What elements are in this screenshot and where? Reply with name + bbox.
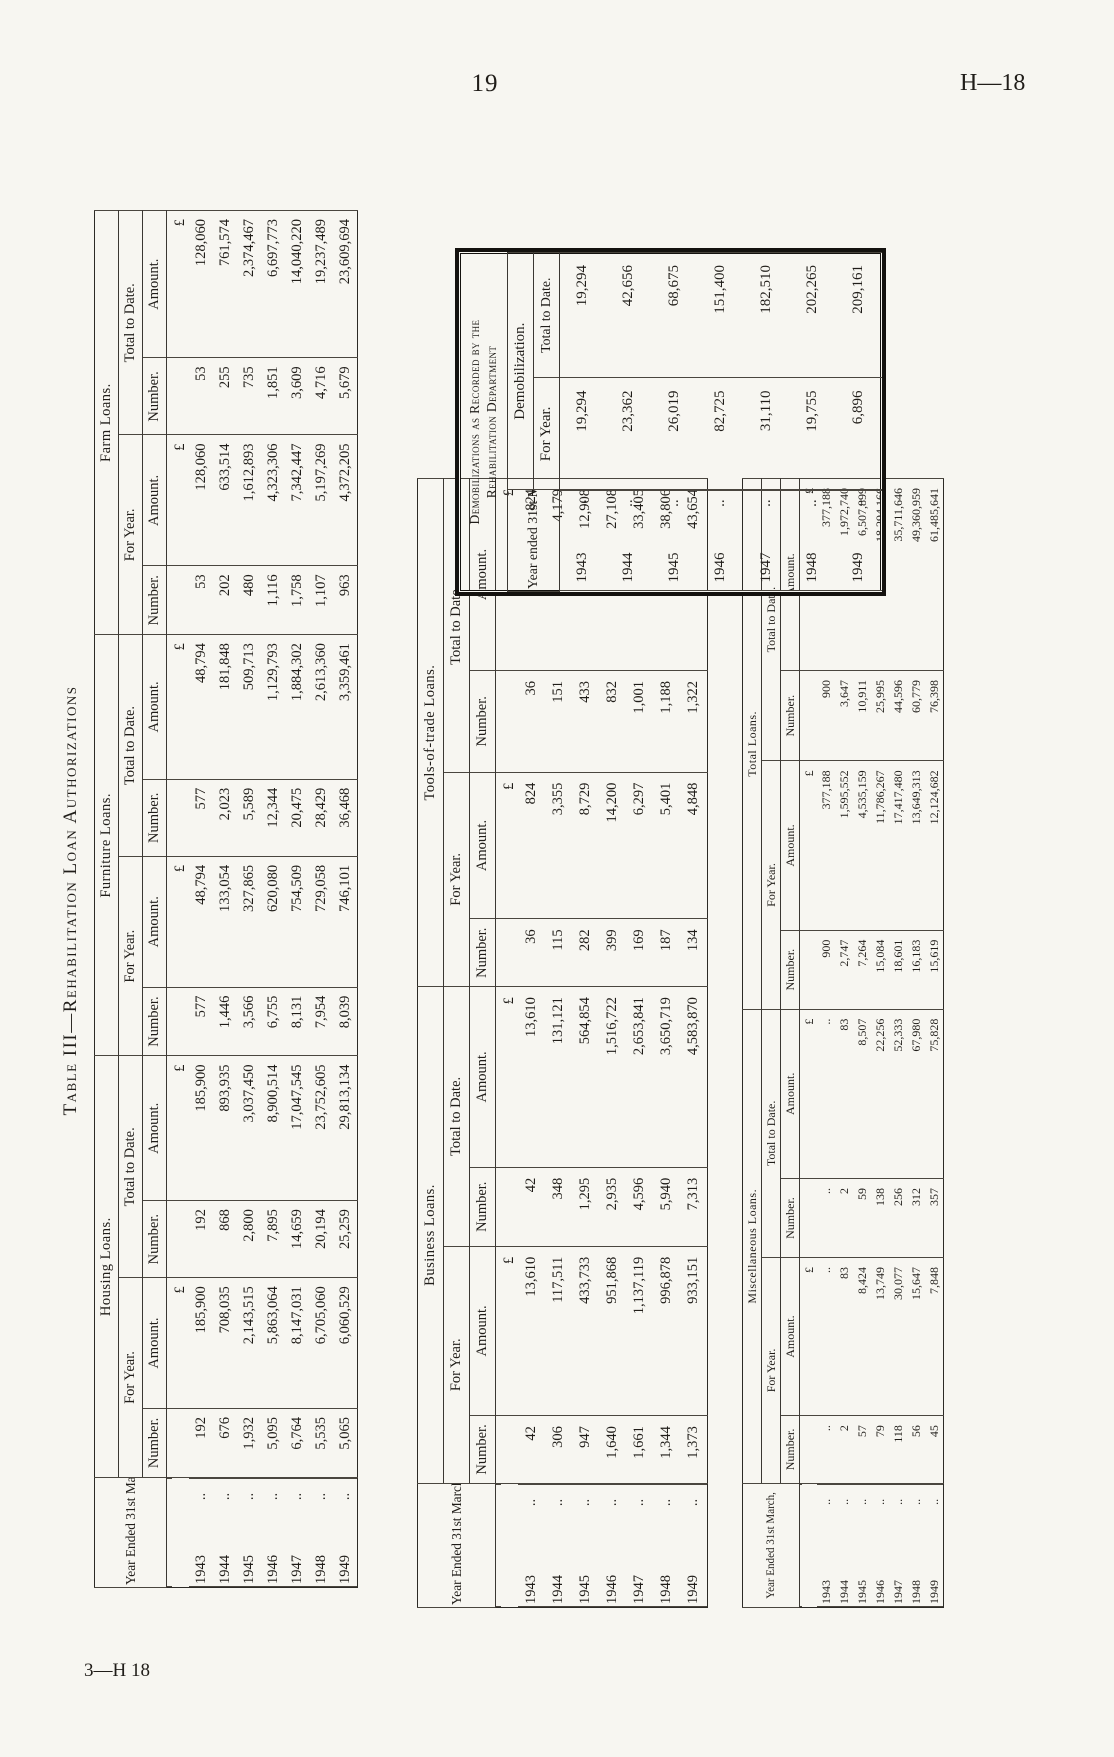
value-cell xyxy=(167,779,190,856)
rotated-table-sheet: Table III—Rehabilitation Loan Authorizat… xyxy=(60,48,1070,1708)
subheader-for-year: For Year. xyxy=(119,856,143,1056)
value-cell: 7,342,447 xyxy=(285,435,309,566)
value-cell: 1,344 xyxy=(653,1416,680,1484)
value-cell: 19,294 xyxy=(559,253,606,378)
value-cell: 1,001 xyxy=(626,670,653,772)
value-cell: 20,194 xyxy=(309,1201,333,1278)
value-cell: 117,511 xyxy=(545,1246,572,1415)
value-cell: 118 xyxy=(889,1416,907,1484)
year-cell: 1945.. xyxy=(237,1478,261,1587)
leader-dots: .. xyxy=(819,1499,834,1505)
value-cell: 433,733 xyxy=(572,1246,599,1415)
year-label: 1943 xyxy=(193,1555,209,1584)
value-cell: 14,200 xyxy=(599,772,626,919)
value-cell: 19,237,489 xyxy=(309,211,333,358)
value-cell: 128,060 xyxy=(189,211,213,358)
leader-dots: .. xyxy=(850,499,867,507)
value-cell: 2,935 xyxy=(599,1167,626,1246)
value-cell: 868 xyxy=(213,1201,237,1278)
value-cell: .. xyxy=(817,1258,835,1416)
value-cell: 36,468 xyxy=(333,779,358,856)
value-cell: 31,110 xyxy=(744,378,790,490)
value-cell: 25,259 xyxy=(333,1201,358,1278)
col-number: Number. xyxy=(470,1416,496,1484)
year-label: 1947 xyxy=(891,1580,905,1604)
value-cell: 36 xyxy=(518,670,545,772)
value-cell: 26,019 xyxy=(652,378,698,490)
leader-dots: .. xyxy=(873,1499,888,1505)
col-amount: Amount. xyxy=(143,635,167,780)
value-cell: 480 xyxy=(237,566,261,635)
year-label: 1944 xyxy=(620,553,636,583)
year-label: 1948 xyxy=(804,553,820,583)
value-cell: 3,355 xyxy=(545,772,572,919)
subheader-for-year: For Year. xyxy=(444,1246,470,1483)
value-cell: 14,040,220 xyxy=(285,211,309,358)
value-cell: 2 xyxy=(835,1179,853,1258)
value-cell: 1,595,552 xyxy=(835,761,853,930)
value-cell: 1,851 xyxy=(261,358,285,435)
year-label: 1949 xyxy=(850,553,866,583)
value-cell: 49,360,959 xyxy=(907,479,925,671)
leader-dots: .. xyxy=(574,499,591,507)
value-cell: 67,980 xyxy=(907,1009,925,1178)
value-cell: 131,121 xyxy=(545,987,572,1168)
year-cell: 1943.. xyxy=(560,490,606,591)
value-cell: 7,954 xyxy=(309,987,333,1056)
year-label: 1945 xyxy=(666,553,682,583)
value-cell: 6,705,060 xyxy=(309,1278,333,1409)
year-label: 1943 xyxy=(574,553,590,583)
leader-dots: .. xyxy=(927,1499,942,1505)
value-cell: 933,151 xyxy=(680,1246,708,1415)
year-label: 1945 xyxy=(241,1555,257,1584)
value-cell: 3,647 xyxy=(835,671,853,761)
year-cell: 1948.. xyxy=(309,1478,333,1587)
subheader-total-to-date: Total to Date. xyxy=(444,987,470,1247)
subheader-for-year: For Year. xyxy=(762,761,781,1009)
year-label: 1947 xyxy=(631,1575,647,1604)
value-cell: 7,313 xyxy=(680,1167,708,1246)
value-cell xyxy=(800,1416,818,1484)
value-cell: 68,675 xyxy=(652,253,698,378)
value-cell: 6,060,529 xyxy=(333,1278,358,1409)
value-cell: 14,659 xyxy=(285,1201,309,1278)
col-number: Number. xyxy=(143,987,167,1056)
value-cell: 151,400 xyxy=(698,253,744,378)
value-cell: 61,485,641 xyxy=(925,479,944,671)
value-cell xyxy=(167,358,190,435)
col-number: Number. xyxy=(143,1409,167,1478)
value-cell: 4,848 xyxy=(680,772,708,919)
col-number: Number. xyxy=(143,1201,167,1278)
value-cell: 185,900 xyxy=(189,1056,213,1201)
value-cell: 7,848 xyxy=(925,1258,944,1416)
value-cell: 1,322 xyxy=(680,670,708,772)
col-amount: Amount. xyxy=(143,1278,167,1409)
value-cell: 7,895 xyxy=(261,1201,285,1278)
subheader-for-year: For Year. xyxy=(119,1278,143,1478)
value-cell: 6,896 xyxy=(836,378,882,490)
value-cell: 951,868 xyxy=(599,1246,626,1415)
subheader-for-year: For Year. xyxy=(533,378,559,490)
demobilizations-table: Year ended 31st March, Demobilization. F… xyxy=(508,252,882,592)
year-cell: 1945.. xyxy=(652,490,698,591)
value-cell xyxy=(167,1409,190,1478)
col-amount: Amount. xyxy=(143,435,167,566)
value-cell: 60,779 xyxy=(907,671,925,761)
value-cell: 1,373 xyxy=(680,1416,708,1484)
value-cell: 134 xyxy=(680,919,708,987)
year-cell: 1946.. xyxy=(599,1484,626,1607)
year-cell: 1948.. xyxy=(790,490,836,591)
value-cell: 187 xyxy=(653,919,680,987)
value-cell: 48,794 xyxy=(189,856,213,987)
value-cell: 75,828 xyxy=(925,1009,944,1178)
col-amount: Amount. xyxy=(781,1258,800,1416)
year-cell: 1949.. xyxy=(680,1484,707,1607)
value-cell: 433 xyxy=(572,670,599,772)
value-cell: 42 xyxy=(518,1416,545,1484)
value-cell: 115 xyxy=(545,919,572,987)
value-cell: 5,535 xyxy=(309,1409,333,1478)
value-cell: 28,429 xyxy=(309,779,333,856)
value-cell: 996,878 xyxy=(653,1246,680,1415)
value-cell: £ xyxy=(167,435,190,566)
value-cell: 1,446 xyxy=(213,987,237,1056)
value-cell: 6,764 xyxy=(285,1409,309,1478)
year-label: 1949 xyxy=(337,1555,353,1584)
value-cell: 1,295 xyxy=(572,1167,599,1246)
value-cell: 900 xyxy=(817,671,835,761)
col-amount: Amount. xyxy=(143,211,167,358)
value-cell: 963 xyxy=(333,566,358,635)
col-amount: Amount. xyxy=(143,856,167,987)
value-cell: 3,650,719 xyxy=(653,987,680,1168)
col-amount: Amount. xyxy=(781,1009,800,1178)
value-cell: 15,084 xyxy=(871,930,889,1009)
year-label: 1944 xyxy=(550,1575,566,1604)
value-cell: 209,161 xyxy=(836,253,882,378)
year-label: 1944 xyxy=(837,1580,851,1604)
year-cell: 1946.. xyxy=(871,1484,889,1607)
value-cell: 5,679 xyxy=(333,358,358,435)
value-cell: 3,609 xyxy=(285,358,309,435)
value-cell: 53 xyxy=(189,358,213,435)
value-cell: 57 xyxy=(853,1416,871,1484)
year-column-header: Year Ended 31st March, xyxy=(95,1477,167,1587)
value-cell: 128,060 xyxy=(189,435,213,566)
value-cell: 348 xyxy=(545,1167,572,1246)
value-cell: 8,147,031 xyxy=(285,1278,309,1409)
value-cell: 48,794 xyxy=(189,635,213,780)
col-number: Number. xyxy=(781,671,800,761)
value-cell: 10,911 xyxy=(853,671,871,761)
value-cell: .. xyxy=(817,1009,835,1178)
value-cell: 18,601 xyxy=(889,930,907,1009)
value-cell: 564,854 xyxy=(572,987,599,1168)
year-cell: 1947.. xyxy=(626,1484,653,1607)
value-cell: 4,596 xyxy=(626,1167,653,1246)
value-cell: 7,264 xyxy=(853,930,871,1009)
value-cell: 2,023 xyxy=(213,779,237,856)
value-cell: 8,131 xyxy=(285,987,309,1056)
value-cell: 17,047,545 xyxy=(285,1056,309,1201)
col-number: Number. xyxy=(470,670,496,772)
year-cell: 1949.. xyxy=(836,490,882,591)
value-cell xyxy=(496,1167,519,1246)
year-cell xyxy=(496,1484,501,1607)
value-cell: £ xyxy=(167,1278,190,1409)
leader-dots: .. xyxy=(193,1493,210,1500)
value-cell: 1,137,119 xyxy=(626,1246,653,1415)
year-label: 1945 xyxy=(577,1575,593,1604)
section-header-tools: Tools-of-trade Loans. xyxy=(418,479,444,987)
year-cell: 1947.. xyxy=(744,490,790,591)
value-cell: 509,713 xyxy=(237,635,261,780)
value-cell: 2,800 xyxy=(237,1201,261,1278)
year-cell: 1943.. xyxy=(817,1484,835,1607)
col-number: Number. xyxy=(143,566,167,635)
value-cell: 4,535,159 xyxy=(853,761,871,930)
value-cell: 947 xyxy=(572,1416,599,1484)
year-cell: 1947.. xyxy=(889,1484,907,1607)
value-cell: 633,514 xyxy=(213,435,237,566)
year-label: 1947 xyxy=(758,553,774,583)
value-cell: 1,188 xyxy=(653,670,680,772)
demobilizations-title-line1: Demobilizations as Recorded by the xyxy=(467,256,484,588)
demobilizations-title: Demobilizations as Recorded by the Rehab… xyxy=(459,252,508,592)
leader-dots: .. xyxy=(712,499,729,507)
year-label: 1946 xyxy=(604,1575,620,1604)
leader-dots: .. xyxy=(804,499,821,507)
value-cell: 8,729 xyxy=(572,772,599,919)
year-label: 1946 xyxy=(873,1580,887,1604)
subheader-total-to-date: Total to Date. xyxy=(533,253,559,378)
leader-dots: .. xyxy=(265,1493,282,1500)
year-cell: 1946.. xyxy=(261,1478,285,1587)
value-cell: 1,932 xyxy=(237,1409,261,1478)
value-cell: 30,077 xyxy=(889,1258,907,1416)
col-number: Number. xyxy=(143,779,167,856)
value-cell xyxy=(167,987,190,1056)
value-cell: £ xyxy=(167,211,190,358)
value-cell: 900 xyxy=(817,930,835,1009)
year-cell: 1949.. xyxy=(925,1484,943,1607)
value-cell: 1,612,893 xyxy=(237,435,261,566)
value-cell: 577 xyxy=(189,987,213,1056)
value-cell: 2,747 xyxy=(835,930,853,1009)
value-cell: 2,143,515 xyxy=(237,1278,261,1409)
value-cell: 138 xyxy=(871,1179,889,1258)
value-cell: 16,183 xyxy=(907,930,925,1009)
leader-dots: .. xyxy=(289,1493,306,1500)
value-cell: 151 xyxy=(545,670,572,772)
value-cell: 12,124,682 xyxy=(925,761,944,930)
year-label: 1946 xyxy=(265,1555,281,1584)
col-number: Number. xyxy=(781,1416,800,1484)
value-cell: 4,372,205 xyxy=(333,435,358,566)
value-cell: £ xyxy=(167,856,190,987)
value-cell: 83 xyxy=(835,1009,853,1178)
leader-dots: .. xyxy=(685,1499,702,1506)
value-cell: 1,129,793 xyxy=(261,635,285,780)
year-cell: 1944.. xyxy=(606,490,652,591)
leader-dots: .. xyxy=(313,1493,330,1500)
value-cell: 181,848 xyxy=(213,635,237,780)
value-cell: 182,510 xyxy=(744,253,790,378)
value-cell: 256 xyxy=(889,1179,907,1258)
value-cell: 4,716 xyxy=(309,358,333,435)
subheader-for-year: For Year. xyxy=(119,435,143,635)
section-header-miscellaneous: Miscellaneous Loans. xyxy=(743,1009,762,1483)
value-cell: 1,116 xyxy=(261,566,285,635)
value-cell: 3,037,450 xyxy=(237,1056,261,1201)
loans-table-housing-furniture-farm: Year Ended 31st March, Housing Loans. Fu… xyxy=(94,210,358,1588)
loans-table-business-tools: Year Ended 31st March, Business Loans. T… xyxy=(417,478,708,1608)
value-cell: 15,619 xyxy=(925,930,944,1009)
value-cell: 2,374,467 xyxy=(237,211,261,358)
value-cell: 202,265 xyxy=(790,253,836,378)
value-cell: 19,755 xyxy=(790,378,836,490)
leader-dots: .. xyxy=(909,1499,924,1505)
value-cell: 17,417,480 xyxy=(889,761,907,930)
value-cell: 76,398 xyxy=(925,671,944,761)
table-title: Table III—Rehabilitation Loan Authorizat… xyxy=(60,213,82,1588)
year-cell: 1944.. xyxy=(545,1484,572,1607)
year-cell: 1947.. xyxy=(285,1478,309,1587)
value-cell xyxy=(167,1201,190,1278)
demobilizations-box: Demobilizations as Recorded by the Rehab… xyxy=(455,248,886,596)
year-cell: 1949.. xyxy=(333,1478,357,1587)
value-cell xyxy=(800,930,818,1009)
year-label: 1948 xyxy=(658,1575,674,1604)
scanned-document-page: 19 H—18 3—H 18 Table III—Rehabilitation … xyxy=(0,0,1114,1757)
value-cell: 83 xyxy=(835,1258,853,1416)
section-header-business: Business Loans. xyxy=(418,987,444,1484)
value-cell: 735 xyxy=(237,358,261,435)
year-column-header: Year Ended 31st March, xyxy=(418,1483,496,1607)
value-cell: 53 xyxy=(189,566,213,635)
subheader-total-to-date: Total to Date. xyxy=(119,211,143,436)
value-cell: 25,995 xyxy=(871,671,889,761)
value-cell: 1,661 xyxy=(626,1416,653,1484)
value-cell: 169 xyxy=(626,919,653,987)
value-cell: 4,323,306 xyxy=(261,435,285,566)
value-cell: 761,574 xyxy=(213,211,237,358)
value-cell: £ xyxy=(496,772,519,919)
value-cell: 5,197,269 xyxy=(309,435,333,566)
value-cell: .. xyxy=(817,1416,835,1484)
value-cell: 1,640 xyxy=(599,1416,626,1484)
value-cell: 133,054 xyxy=(213,856,237,987)
value-cell: £ xyxy=(800,1258,818,1416)
subheader-total-to-date: Total to Date. xyxy=(119,635,143,857)
value-cell: 185,900 xyxy=(189,1278,213,1409)
leader-dots: .. xyxy=(523,1499,540,1506)
col-amount: Amount. xyxy=(470,772,496,919)
year-cell: 1948.. xyxy=(907,1484,925,1607)
value-cell: 192 xyxy=(189,1409,213,1478)
value-cell: 79 xyxy=(871,1416,889,1484)
value-cell: 5,065 xyxy=(333,1409,358,1478)
value-cell: 708,035 xyxy=(213,1278,237,1409)
group-header-demobilization: Demobilization. xyxy=(508,253,534,490)
year-cell: 1945.. xyxy=(572,1484,599,1607)
value-cell: 20,475 xyxy=(285,779,309,856)
value-cell: 620,080 xyxy=(261,856,285,987)
value-cell: 1,107 xyxy=(309,566,333,635)
section-header-farm: Farm Loans. xyxy=(95,211,119,635)
value-cell: 45 xyxy=(925,1416,944,1484)
year-cell: 1946.. xyxy=(698,490,744,591)
year-label: 1948 xyxy=(909,1580,923,1604)
year-label: 1949 xyxy=(685,1575,701,1604)
value-cell: 399 xyxy=(599,919,626,987)
value-cell: 13,749 xyxy=(871,1258,889,1416)
value-cell xyxy=(496,919,519,987)
year-cell xyxy=(800,1484,802,1607)
year-cell: 1943.. xyxy=(189,1478,213,1587)
value-cell: 3,566 xyxy=(237,987,261,1056)
year-cell xyxy=(167,1478,172,1587)
value-cell: 35,711,646 xyxy=(889,479,907,671)
value-cell: 36 xyxy=(518,919,545,987)
value-cell: 312 xyxy=(907,1179,925,1258)
value-cell: 8,424 xyxy=(853,1258,871,1416)
leader-dots: .. xyxy=(666,499,683,507)
value-cell: 52,333 xyxy=(889,1009,907,1178)
value-cell: 1,516,722 xyxy=(599,987,626,1168)
value-cell: 23,752,605 xyxy=(309,1056,333,1201)
value-cell: 754,509 xyxy=(285,856,309,987)
col-number: Number. xyxy=(470,1167,496,1246)
leader-dots: .. xyxy=(337,1493,354,1500)
year-cell: 1944.. xyxy=(213,1478,237,1587)
value-cell: 282 xyxy=(572,919,599,987)
loans-table-miscellaneous-total: Year Ended 31st March, Miscellaneous Loa… xyxy=(742,478,944,1608)
value-cell: 8,039 xyxy=(333,987,358,1056)
value-cell: 676 xyxy=(213,1409,237,1478)
value-cell: 327,865 xyxy=(237,856,261,987)
value-cell: 202 xyxy=(213,566,237,635)
value-cell xyxy=(496,1416,519,1484)
leader-dots: .. xyxy=(577,1499,594,1506)
value-cell: 6,755 xyxy=(261,987,285,1056)
value-cell: 893,935 xyxy=(213,1056,237,1201)
section-header-furniture: Furniture Loans. xyxy=(95,635,119,1056)
value-cell: 5,095 xyxy=(261,1409,285,1478)
subheader-for-year: For Year. xyxy=(762,1258,781,1484)
year-label: 1946 xyxy=(712,553,728,583)
leader-dots: .. xyxy=(855,1499,870,1505)
value-cell: 3,359,461 xyxy=(333,635,358,780)
subheader-for-year: For Year. xyxy=(444,772,470,987)
col-number: Number. xyxy=(781,930,800,1009)
col-number: Number. xyxy=(143,358,167,435)
year-label: 1944 xyxy=(217,1555,233,1584)
demobilizations-title-line2: Rehabilitation Department xyxy=(484,256,501,588)
value-cell: 82,725 xyxy=(698,378,744,490)
value-cell: 746,101 xyxy=(333,856,358,987)
value-cell: 192 xyxy=(189,1201,213,1278)
year-column-header: Year Ended 31st March, xyxy=(743,1483,800,1607)
year-label: 1948 xyxy=(313,1555,329,1584)
year-label: 1945 xyxy=(855,1580,869,1604)
value-cell: 1,758 xyxy=(285,566,309,635)
subheader-total-to-date: Total to Date. xyxy=(119,1056,143,1278)
value-cell: 44,596 xyxy=(889,671,907,761)
